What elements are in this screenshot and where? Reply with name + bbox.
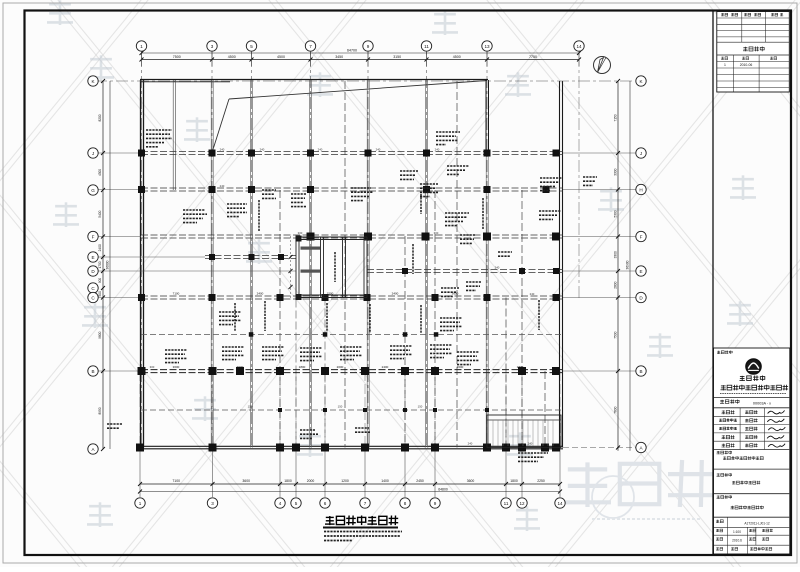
svg-text:1: 1 (140, 44, 143, 49)
svg-text:2400: 2400 (392, 292, 399, 296)
svg-text:64800: 64800 (438, 488, 448, 492)
svg-text:1800: 1800 (284, 479, 292, 483)
svg-text:150: 150 (248, 405, 253, 409)
svg-text:F: F (92, 235, 95, 240)
svg-text:300: 300 (434, 231, 439, 235)
svg-text:2000: 2000 (307, 479, 315, 483)
svg-text:3600: 3600 (467, 479, 475, 483)
svg-text:3600: 3600 (237, 365, 244, 369)
svg-text:B: B (639, 369, 642, 374)
svg-text:8200: 8200 (98, 114, 102, 121)
svg-text:4500: 4500 (228, 55, 236, 59)
svg-text:240: 240 (528, 442, 533, 446)
svg-text:7: 7 (309, 44, 312, 49)
svg-text:2250: 2250 (537, 479, 545, 483)
svg-text:9: 9 (367, 44, 370, 49)
svg-text:7500: 7500 (173, 55, 181, 59)
svg-text:F: F (640, 235, 643, 240)
svg-text:00003A - x: 00003A - x (753, 402, 771, 406)
svg-text:240: 240 (435, 148, 440, 152)
svg-text:4300: 4300 (98, 169, 102, 176)
svg-text:7150: 7150 (614, 114, 618, 121)
svg-text:12: 12 (519, 501, 525, 506)
svg-text:7750: 7750 (529, 55, 537, 59)
svg-text:14: 14 (576, 44, 582, 49)
svg-text:7600: 7600 (614, 406, 618, 413)
svg-text:9: 9 (434, 501, 437, 506)
svg-text:2450: 2450 (416, 479, 424, 483)
svg-text:5300: 5300 (614, 210, 618, 217)
svg-text:2400: 2400 (382, 365, 389, 369)
svg-text:2010-06: 2010-06 (740, 63, 753, 67)
svg-text:2800: 2800 (614, 281, 618, 288)
svg-text:1: 1 (724, 63, 726, 67)
svg-text:1800: 1800 (510, 479, 518, 483)
svg-text:3600: 3600 (452, 292, 459, 296)
svg-text:36800: 36800 (106, 260, 110, 269)
svg-text:240: 240 (530, 292, 535, 296)
svg-text:1200: 1200 (341, 479, 349, 483)
svg-text:36900: 36900 (626, 260, 630, 269)
svg-text:6: 6 (324, 501, 327, 506)
svg-text:9800: 9800 (98, 331, 102, 338)
svg-text:5400: 5400 (98, 210, 102, 217)
svg-text:B: B (91, 369, 94, 374)
svg-text:1700: 1700 (98, 261, 102, 268)
svg-text:240: 240 (220, 184, 225, 188)
svg-text:240: 240 (318, 148, 323, 152)
svg-text:500: 500 (98, 291, 102, 297)
svg-text:3600: 3600 (242, 479, 250, 483)
svg-text:7500: 7500 (614, 331, 618, 338)
svg-text:2400: 2400 (257, 292, 264, 296)
svg-text:3150: 3150 (393, 55, 401, 59)
svg-text:1400: 1400 (381, 479, 389, 483)
svg-text:13: 13 (484, 44, 490, 49)
svg-text:4500: 4500 (453, 55, 461, 59)
svg-text:3300: 3300 (614, 251, 618, 258)
svg-text:5: 5 (250, 44, 253, 49)
svg-text:3450: 3450 (335, 55, 343, 59)
svg-text:300: 300 (298, 231, 303, 235)
svg-text:2000: 2000 (337, 365, 344, 369)
svg-text:1800: 1800 (517, 365, 524, 369)
svg-text:J: J (640, 151, 642, 156)
svg-text:A1T2011-LJ01-12: A1T2011-LJ01-12 (744, 522, 770, 526)
svg-text:E: E (91, 255, 94, 260)
svg-text:7: 7 (364, 501, 367, 506)
svg-text:3300: 3300 (614, 168, 618, 175)
svg-text:3: 3 (211, 44, 214, 49)
svg-text:150: 150 (338, 405, 343, 409)
svg-text:5: 5 (295, 501, 298, 506)
svg-text:1800: 1800 (299, 365, 306, 369)
svg-text:3: 3 (211, 501, 214, 506)
svg-text:240: 240 (495, 266, 500, 270)
svg-text:11: 11 (424, 44, 429, 49)
svg-text:3600: 3600 (173, 365, 180, 369)
svg-text:900: 900 (98, 278, 102, 284)
svg-text:8: 8 (404, 501, 407, 506)
svg-text:4500: 4500 (277, 55, 285, 59)
svg-text:150: 150 (418, 405, 423, 409)
svg-text:1500: 1500 (327, 292, 334, 296)
svg-text:300: 300 (150, 365, 155, 369)
svg-text:11: 11 (504, 501, 509, 506)
svg-text:1: 1 (139, 501, 142, 506)
svg-text:8950: 8950 (98, 407, 102, 414)
svg-text:240: 240 (220, 148, 225, 152)
svg-text:7100: 7100 (173, 292, 180, 296)
svg-text:E: E (639, 269, 642, 274)
svg-text:4: 4 (279, 501, 282, 506)
svg-text:7100: 7100 (172, 479, 180, 483)
svg-text:3600: 3600 (457, 365, 464, 369)
svg-text:H: H (639, 188, 642, 193)
svg-text:14: 14 (557, 501, 563, 506)
svg-text:64700: 64700 (347, 49, 357, 53)
svg-text:J: J (92, 151, 94, 156)
svg-text:2400: 2400 (98, 244, 102, 251)
svg-text:240: 240 (260, 148, 265, 152)
svg-text:240: 240 (376, 148, 381, 152)
svg-text:1:100: 1:100 (733, 530, 741, 534)
svg-text:240: 240 (468, 442, 473, 446)
svg-text:G: G (91, 188, 95, 193)
svg-text:2010.6: 2010.6 (732, 539, 742, 543)
